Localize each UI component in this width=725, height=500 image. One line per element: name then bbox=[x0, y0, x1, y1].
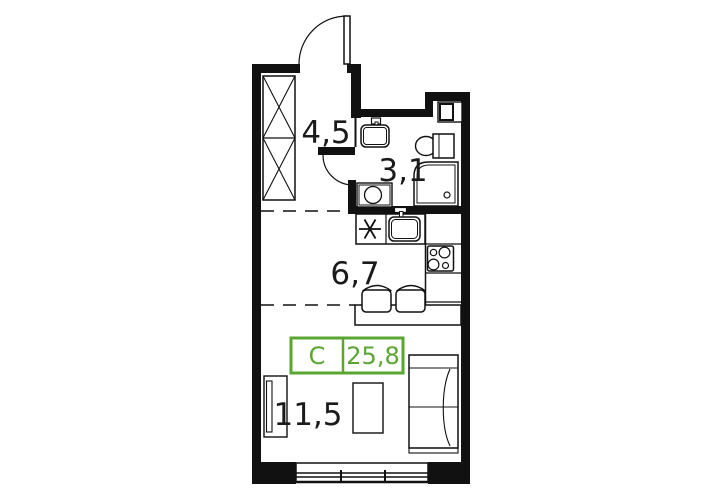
floor-plan-svg: С 25,8 4,5 3,1 6,7 11,5 bbox=[0, 0, 725, 500]
badge-area-text: 25,8 bbox=[346, 342, 399, 370]
toilet-tank bbox=[433, 134, 454, 158]
bed-outline bbox=[409, 355, 458, 448]
hallway-wardrobe bbox=[263, 76, 295, 200]
badge-unit-text: С bbox=[309, 342, 326, 370]
door-leaf bbox=[344, 16, 350, 64]
wall-segment bbox=[252, 462, 296, 484]
vent-shaft bbox=[438, 102, 462, 122]
room-label-living-room: 11,5 bbox=[273, 397, 342, 433]
stool-seat bbox=[396, 290, 425, 312]
room-label-kitchen: 6,7 bbox=[330, 256, 379, 292]
stool bbox=[396, 286, 426, 313]
room-label-hallway: 4,5 bbox=[301, 115, 350, 151]
door-swing-arc bbox=[299, 16, 347, 64]
floor-plan-canvas: С 25,8 4,5 3,1 6,7 11,5 bbox=[0, 0, 725, 500]
sink-outer bbox=[389, 217, 420, 241]
wall-segment bbox=[461, 92, 470, 484]
wall-segment bbox=[351, 109, 433, 117]
stool-seat bbox=[362, 290, 391, 312]
bottom-window bbox=[296, 463, 428, 482]
stove bbox=[428, 246, 454, 271]
washbasin bbox=[361, 118, 389, 147]
room-label-bathroom: 3,1 bbox=[378, 153, 427, 189]
area-badge: С 25,8 bbox=[291, 338, 403, 373]
bed bbox=[409, 355, 458, 453]
entry-door bbox=[299, 16, 350, 64]
basin-outer bbox=[361, 125, 389, 147]
wall-segment bbox=[428, 462, 470, 484]
wall-segment bbox=[252, 64, 261, 484]
coffee-table bbox=[353, 383, 383, 433]
